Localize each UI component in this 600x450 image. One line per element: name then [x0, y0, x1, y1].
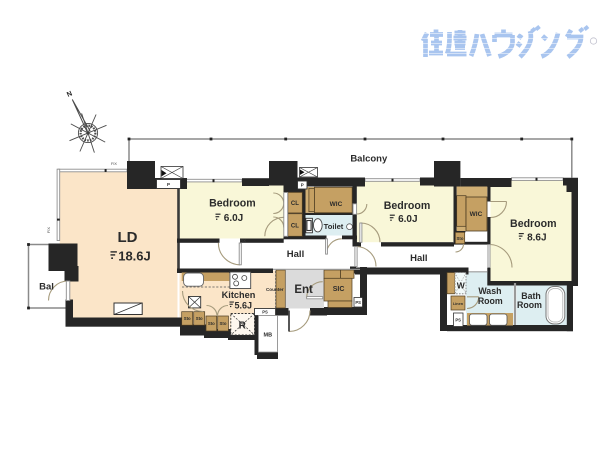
svg-text:FIX: FIX	[47, 227, 51, 233]
svg-text:Sto: Sto	[220, 321, 227, 326]
svg-text:LD: LD	[118, 229, 138, 246]
svg-text:FIX: FIX	[111, 162, 117, 166]
svg-text:6.0J: 6.0J	[398, 214, 417, 225]
svg-text:Ent: Ent	[294, 284, 313, 296]
svg-text:Bedroom: Bedroom	[510, 218, 557, 230]
svg-text:R: R	[239, 321, 247, 332]
svg-text:Sto: Sto	[457, 236, 464, 241]
svg-text:Counter: Counter	[266, 287, 284, 292]
svg-text:5.6J: 5.6J	[235, 301, 253, 311]
svg-text:Hall: Hall	[287, 249, 304, 260]
svg-text:W: W	[457, 281, 466, 291]
svg-text:P: P	[301, 183, 304, 188]
svg-text:6.0J: 6.0J	[224, 213, 243, 224]
svg-text:PS: PS	[455, 318, 461, 323]
svg-text:Wash: Wash	[478, 286, 501, 296]
svg-text:WIC: WIC	[330, 201, 343, 208]
svg-text:Toilet: Toilet	[324, 222, 344, 231]
svg-text:Sto: Sto	[196, 316, 203, 321]
svg-text:18.6J: 18.6J	[118, 249, 151, 264]
svg-text:Sto: Sto	[184, 316, 191, 321]
svg-text:CL: CL	[291, 201, 299, 207]
svg-text:Hall: Hall	[410, 253, 427, 264]
svg-text:Linen: Linen	[453, 302, 464, 306]
svg-text:CL: CL	[291, 224, 299, 230]
svg-text:Kitchen: Kitchen	[222, 290, 256, 300]
svg-text:8.6J: 8.6J	[527, 233, 546, 244]
svg-text:SIC: SIC	[333, 286, 345, 293]
svg-text:Room: Room	[517, 300, 542, 310]
svg-text:Bedroom: Bedroom	[209, 198, 256, 210]
svg-text:Balcony: Balcony	[350, 154, 388, 165]
svg-text:P: P	[167, 182, 170, 187]
svg-text:Room: Room	[478, 296, 503, 306]
svg-text:WIC: WIC	[470, 211, 483, 218]
svg-text:Sto: Sto	[208, 321, 215, 326]
svg-text:PS: PS	[262, 310, 268, 315]
svg-text:FIX: FIX	[240, 239, 246, 243]
svg-text:Bedroom: Bedroom	[384, 200, 431, 212]
svg-text:PS: PS	[355, 300, 361, 305]
svg-text:MB: MB	[264, 333, 273, 339]
svg-text:Bal: Bal	[39, 282, 54, 293]
